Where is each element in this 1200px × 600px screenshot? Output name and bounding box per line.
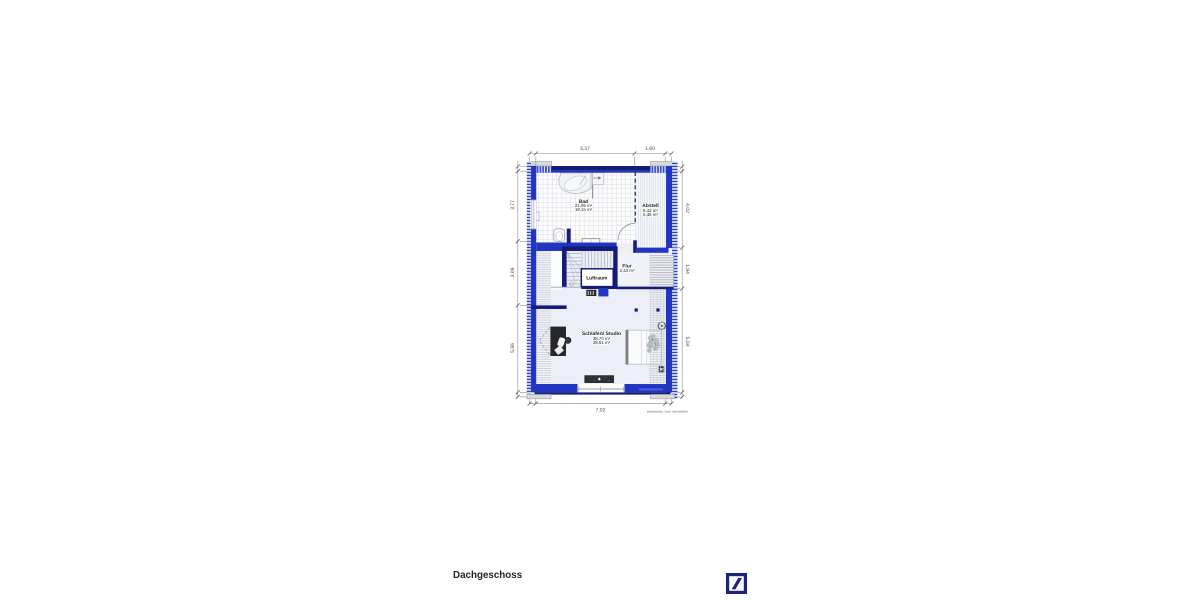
svg-text:4,02: 4,02 — [684, 203, 690, 213]
svg-text:Luftraum: Luftraum — [586, 276, 608, 282]
svg-text:5,96: 5,96 — [510, 343, 516, 353]
svg-text:5,46 m²: 5,46 m² — [643, 212, 658, 217]
svg-text:3,77: 3,77 — [510, 200, 516, 210]
svg-text:19,15 m²: 19,15 m² — [575, 207, 593, 212]
svg-text:28,61 m²: 28,61 m² — [593, 340, 611, 345]
svg-text:2,43 m²: 2,43 m² — [620, 268, 635, 273]
svg-text:3,09: 3,09 — [510, 267, 516, 277]
svg-text:5,04: 5,04 — [684, 337, 690, 347]
svg-text:Beispielplan, nicht maßstäblic: Beispielplan, nicht maßstäblich — [647, 409, 689, 413]
svg-text:5,37: 5,37 — [580, 146, 590, 152]
svg-text:7,02: 7,02 — [596, 408, 606, 414]
svg-text:1,94: 1,94 — [684, 264, 690, 274]
svg-text:1,60: 1,60 — [645, 146, 655, 152]
